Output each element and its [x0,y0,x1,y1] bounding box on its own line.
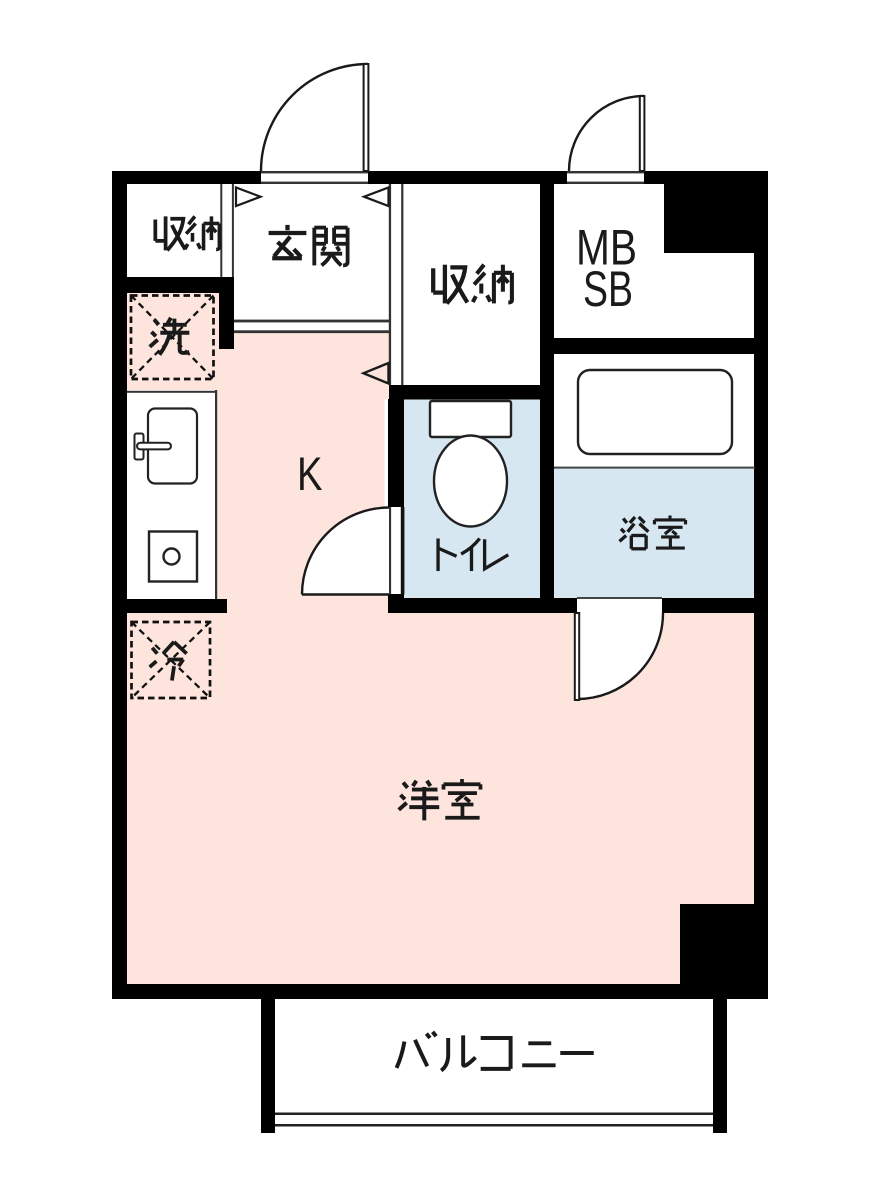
svg-text:K: K [297,448,323,501]
svg-text:SB: SB [583,261,633,317]
